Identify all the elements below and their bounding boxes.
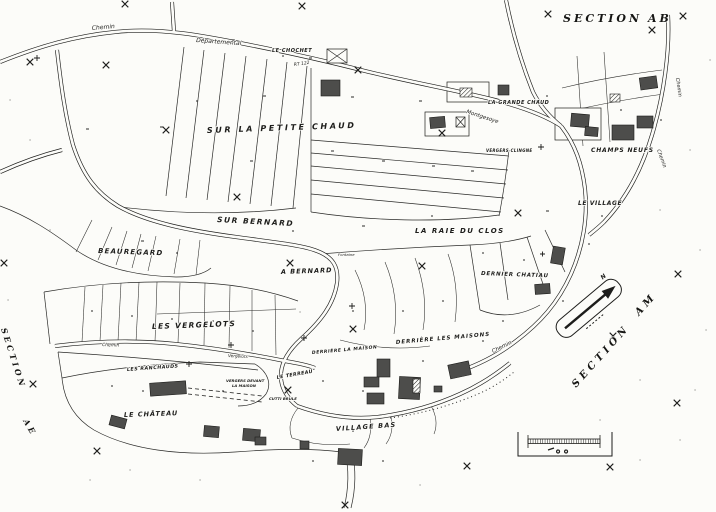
section-titles: SECTION AB SECTION AM SECTION AE (0, 12, 672, 438)
label-sur-bernard: SUR BERNARD (217, 215, 294, 228)
section-ae-word: SECTION (0, 327, 28, 390)
label-vergers-clingne: VERGERS CLINGNE (486, 148, 532, 153)
label-le-village: LE VILLAGE (578, 200, 623, 207)
scale-bar (518, 432, 612, 456)
label-la-grande-chaud: LA GRANDE CHAUD (488, 100, 549, 106)
label-derriere-la-maison: DERRIÈRE LA MAISON (312, 343, 378, 356)
label-la-raie-du-clos: LA RAIE DU CLOS (415, 227, 505, 235)
section-ae-code: AE (21, 416, 39, 438)
label-chemin-right-lower: Chemin (655, 149, 667, 169)
crossed-building-icon (456, 117, 465, 127)
label-cutti-brule: CUTTI BRULE (269, 396, 297, 401)
label-village-bas: VILLAGE BAS (336, 421, 397, 433)
label-fontaine: Fontaine (338, 252, 355, 257)
label-rt-122: RT 122 (293, 60, 310, 68)
section-ab-word: SECTION (563, 12, 642, 25)
cadastral-map-sheet: N SECTION AB SECTION AM SECTION AE LE CH… (0, 0, 716, 512)
label-departemental: Départemental (196, 37, 242, 47)
label-beauregard: BEAUREGARD (98, 247, 164, 257)
section-ab-code: AB (647, 12, 672, 25)
label-sur-la-petite-chaud: SUR LA PETITE CHAUD (207, 121, 357, 135)
section-am-word: SECTION (570, 323, 632, 390)
label-chemin-right-upper: Chemin (674, 77, 683, 97)
label-le-chateau: LE CHÂTEAU (124, 408, 179, 419)
label-vergelots-road: Vergelots (228, 353, 249, 359)
road-labels: Chemin Départemental RT 122 Montgesoye C… (92, 23, 683, 359)
section-am-code: AM (632, 291, 659, 319)
cadastral-map: N SECTION AB SECTION AM SECTION AE LE CH… (0, 0, 716, 512)
label-dernier-chatiau: DERNIER CHATIAU (481, 271, 549, 279)
crossed-building-icon (327, 49, 347, 63)
label-montgesoye: Montgesoye (465, 109, 499, 125)
label-vergers-devant-line2: LA MAISON (232, 383, 257, 388)
label-champs-neufs: CHAMPS NEUFS (591, 147, 654, 154)
label-derriere-les-maisons: DERRIÈRE LES MAISONS (396, 331, 491, 346)
place-labels: LE CHOCHET SUR LA PETITE CHAUD LA GRANDE… (98, 48, 654, 433)
label-les-vergelots: LES VERGELOTS (152, 319, 236, 331)
label-le-chochet: LE CHOCHET (272, 48, 312, 54)
label-a-bernard: A BERNARD (280, 266, 333, 276)
label-chemin-vergelots: Chemin (102, 342, 120, 349)
